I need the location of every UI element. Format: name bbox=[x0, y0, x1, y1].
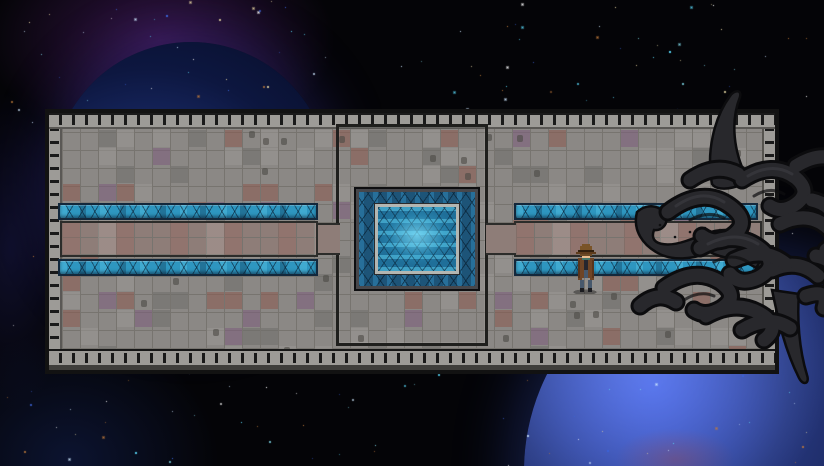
game-viewport bbox=[0, 0, 824, 466]
tentacle-monster[interactable] bbox=[0, 0, 824, 466]
